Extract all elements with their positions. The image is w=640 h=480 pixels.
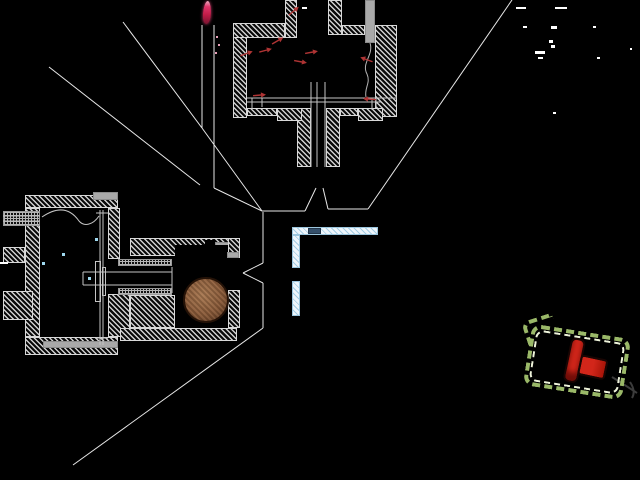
- leader-line: [73, 328, 263, 465]
- speck: [597, 57, 600, 59]
- speck: [535, 51, 545, 54]
- speck: [516, 7, 526, 9]
- leader-line: [368, 0, 512, 209]
- speck: [549, 40, 553, 43]
- particle-arrow-icon: [287, 5, 300, 17]
- speck: [216, 36, 218, 38]
- speck: [88, 277, 91, 280]
- fuel-line-wire: [42, 210, 99, 225]
- speck: [555, 7, 567, 9]
- speck: [523, 26, 527, 28]
- speck: [551, 45, 555, 48]
- speck: [0, 262, 8, 264]
- leader-line: [305, 188, 316, 211]
- speck: [551, 26, 557, 29]
- speck: [62, 253, 65, 256]
- speck: [630, 48, 632, 50]
- particle-arrow-icon: [305, 49, 319, 56]
- particle-arrow-icon: [259, 46, 273, 54]
- particle-arrow-icon: [294, 58, 308, 65]
- particle-arrow-icon: [363, 96, 376, 102]
- leader-line: [243, 273, 263, 283]
- speck: [215, 52, 217, 54]
- leader-line: [202, 128, 262, 211]
- speck: [95, 238, 98, 241]
- speck: [302, 7, 307, 9]
- particle-arrow-icon: [271, 35, 285, 46]
- speck: [42, 262, 45, 265]
- speck: [538, 57, 543, 59]
- speck: [593, 26, 596, 28]
- leader-line: [243, 263, 263, 273]
- speck: [553, 112, 556, 114]
- technical-diagram-stage: [0, 0, 640, 480]
- leader-line: [323, 188, 328, 209]
- leader-line: [214, 188, 262, 211]
- particle-arrow-icon: [240, 49, 254, 58]
- leader-lines-layer: [0, 0, 640, 480]
- speck: [218, 44, 220, 46]
- leader-line: [123, 22, 202, 128]
- particle-arrow-icon: [253, 92, 266, 98]
- leader-line: [49, 67, 200, 185]
- red-plug-stem: [577, 354, 609, 380]
- thermocouple-wire: [365, 43, 370, 97]
- check-valve-ball: [183, 277, 229, 323]
